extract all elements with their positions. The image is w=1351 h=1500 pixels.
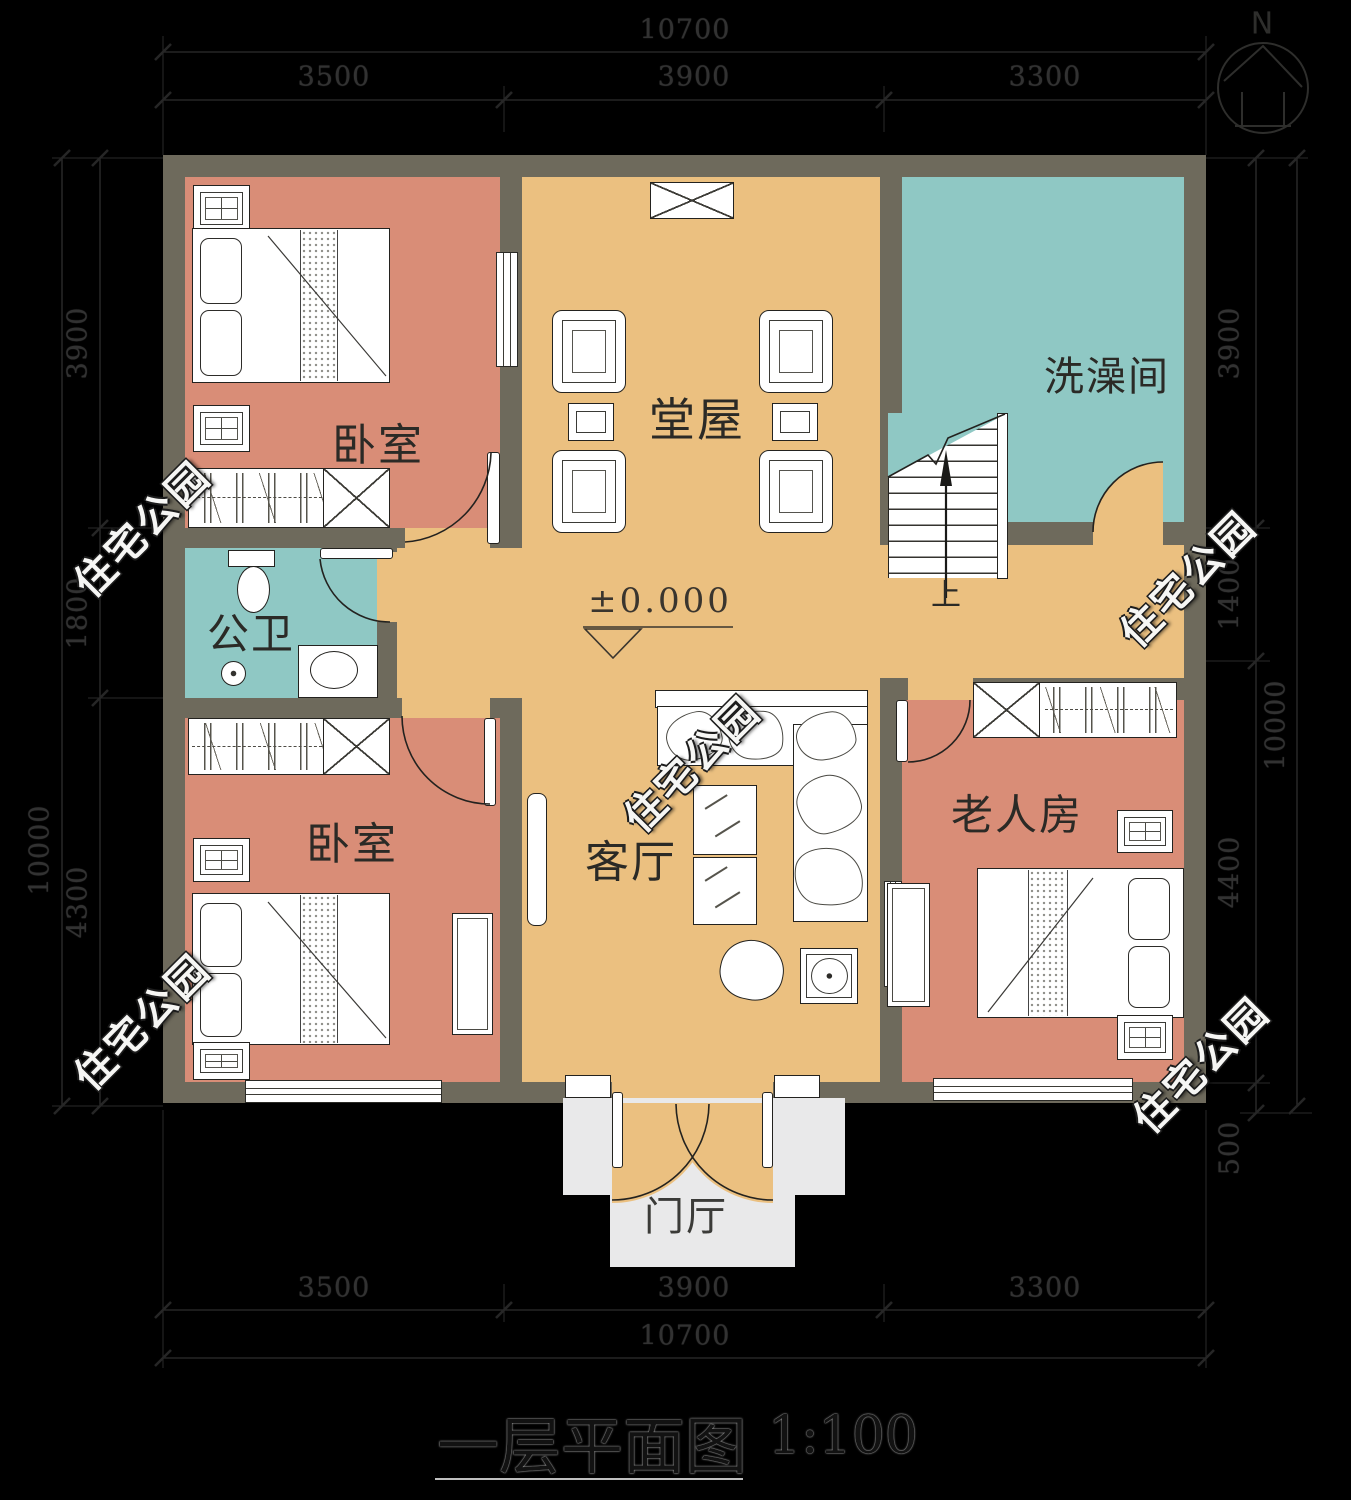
door-opening-toilet [377, 552, 397, 622]
door-leaf-bedroom-bottom [484, 718, 496, 806]
label-toilet: 公卫 [207, 601, 295, 662]
label-elder: 老人房 [951, 782, 1083, 843]
label-shower: 洗澡间 [1044, 344, 1170, 402]
armchair [552, 450, 626, 533]
toilet-tank [228, 550, 275, 567]
pillow [200, 903, 242, 967]
door-leaf-elder [896, 700, 908, 762]
window-bedroom-top-hall [496, 252, 518, 367]
dim-bottom-seg-1: 3500 [298, 1273, 371, 1304]
nightstand [193, 185, 250, 232]
window-bedroom-bottom [245, 1080, 442, 1103]
wardrobe-mirror-section [973, 682, 1040, 738]
dim-top-overall: 10700 [640, 15, 731, 46]
dim-top-seg-3: 3300 [1009, 62, 1082, 93]
dim-left-seg-1: 3900 [63, 307, 94, 380]
dim-top-seg-2: 3900 [658, 62, 731, 93]
dim-right-overall: 10000 [1261, 680, 1292, 771]
pillow [200, 238, 242, 304]
door-opening-bedroom-bottom [402, 698, 490, 718]
door-opening-bedroom-top [405, 528, 490, 548]
wardrobe-rail [1045, 709, 1173, 710]
dim-bottom-overall: 10700 [640, 1321, 731, 1352]
armchair [759, 310, 833, 393]
coffee-table [693, 857, 757, 925]
wardrobe-rail [192, 497, 322, 498]
entry-jamb-right [774, 1075, 820, 1098]
label-bedroom-bottom: 卧室 [306, 808, 398, 872]
door-leaf-toilet [320, 548, 393, 559]
entry-door-leaf-right [762, 1092, 773, 1168]
bed-blanket [300, 895, 338, 1043]
level-marker-text: ±0.000 [588, 581, 732, 621]
floor-plan-canvas: 卧室 堂屋 洗澡间 公卫 卧室 客厅 老人房 门厅 上 ±0.000 N 107… [0, 0, 1351, 1500]
armchair [552, 310, 626, 393]
entry-jamb-left [565, 1075, 611, 1098]
dim-right-seg-1: 3900 [1215, 307, 1246, 380]
dim-left-seg-3: 4300 [63, 866, 94, 939]
wardrobe-mirror-section [323, 718, 390, 775]
pillow [1128, 946, 1170, 1008]
nightstand [1117, 810, 1173, 853]
north-symbol [1218, 43, 1308, 133]
floor-drain [221, 661, 246, 686]
drawing-scale: 1:100 [768, 1406, 918, 1466]
tv-cabinet-bedroom-bottom [452, 913, 493, 1035]
dim-right-seg-4: 500 [1215, 1121, 1246, 1176]
bed-blanket [1028, 870, 1068, 1016]
bed-blanket [300, 230, 338, 381]
side-table [568, 403, 614, 441]
north-label: N [1251, 7, 1275, 42]
stairs-rail [997, 413, 1008, 579]
wardrobe-rail [192, 746, 322, 747]
nightstand [1117, 1015, 1173, 1060]
wardrobe-mirror-section [323, 468, 390, 528]
title-underline [435, 1478, 743, 1480]
side-table [772, 403, 818, 441]
label-bedroom-top: 卧室 [332, 409, 424, 473]
dim-left-overall: 10000 [25, 805, 56, 896]
door-leaf-living-west [527, 793, 547, 926]
label-stairs-up: 上 [931, 570, 963, 614]
pillow [1128, 878, 1170, 940]
corridor-left [397, 548, 522, 698]
pillow [200, 310, 242, 376]
nightstand [193, 1042, 250, 1080]
altar-table [650, 182, 734, 219]
tv-cabinet-elder [887, 883, 930, 1007]
door-opening-elder [908, 678, 973, 700]
nightstand [193, 405, 250, 452]
sink-basin [310, 651, 358, 689]
drawing-title: 一层平面图 [437, 1396, 747, 1486]
window-elder [933, 1078, 1133, 1101]
entry-door-leaf-left [612, 1092, 623, 1168]
door-leaf-bedroom-top [487, 452, 500, 544]
fan-stand [800, 948, 858, 1004]
dim-top-seg-1: 3500 [298, 62, 371, 93]
dim-bottom-seg-2: 3900 [658, 1273, 731, 1304]
dim-bottom-seg-3: 3300 [1009, 1273, 1082, 1304]
armchair [759, 450, 833, 533]
dim-right-seg-3: 4400 [1215, 836, 1246, 909]
label-foyer: 门厅 [644, 1184, 728, 1242]
label-living: 客厅 [585, 826, 677, 890]
coffee-table [693, 785, 757, 855]
label-hall: 堂屋 [649, 384, 745, 450]
nightstand [193, 838, 250, 882]
